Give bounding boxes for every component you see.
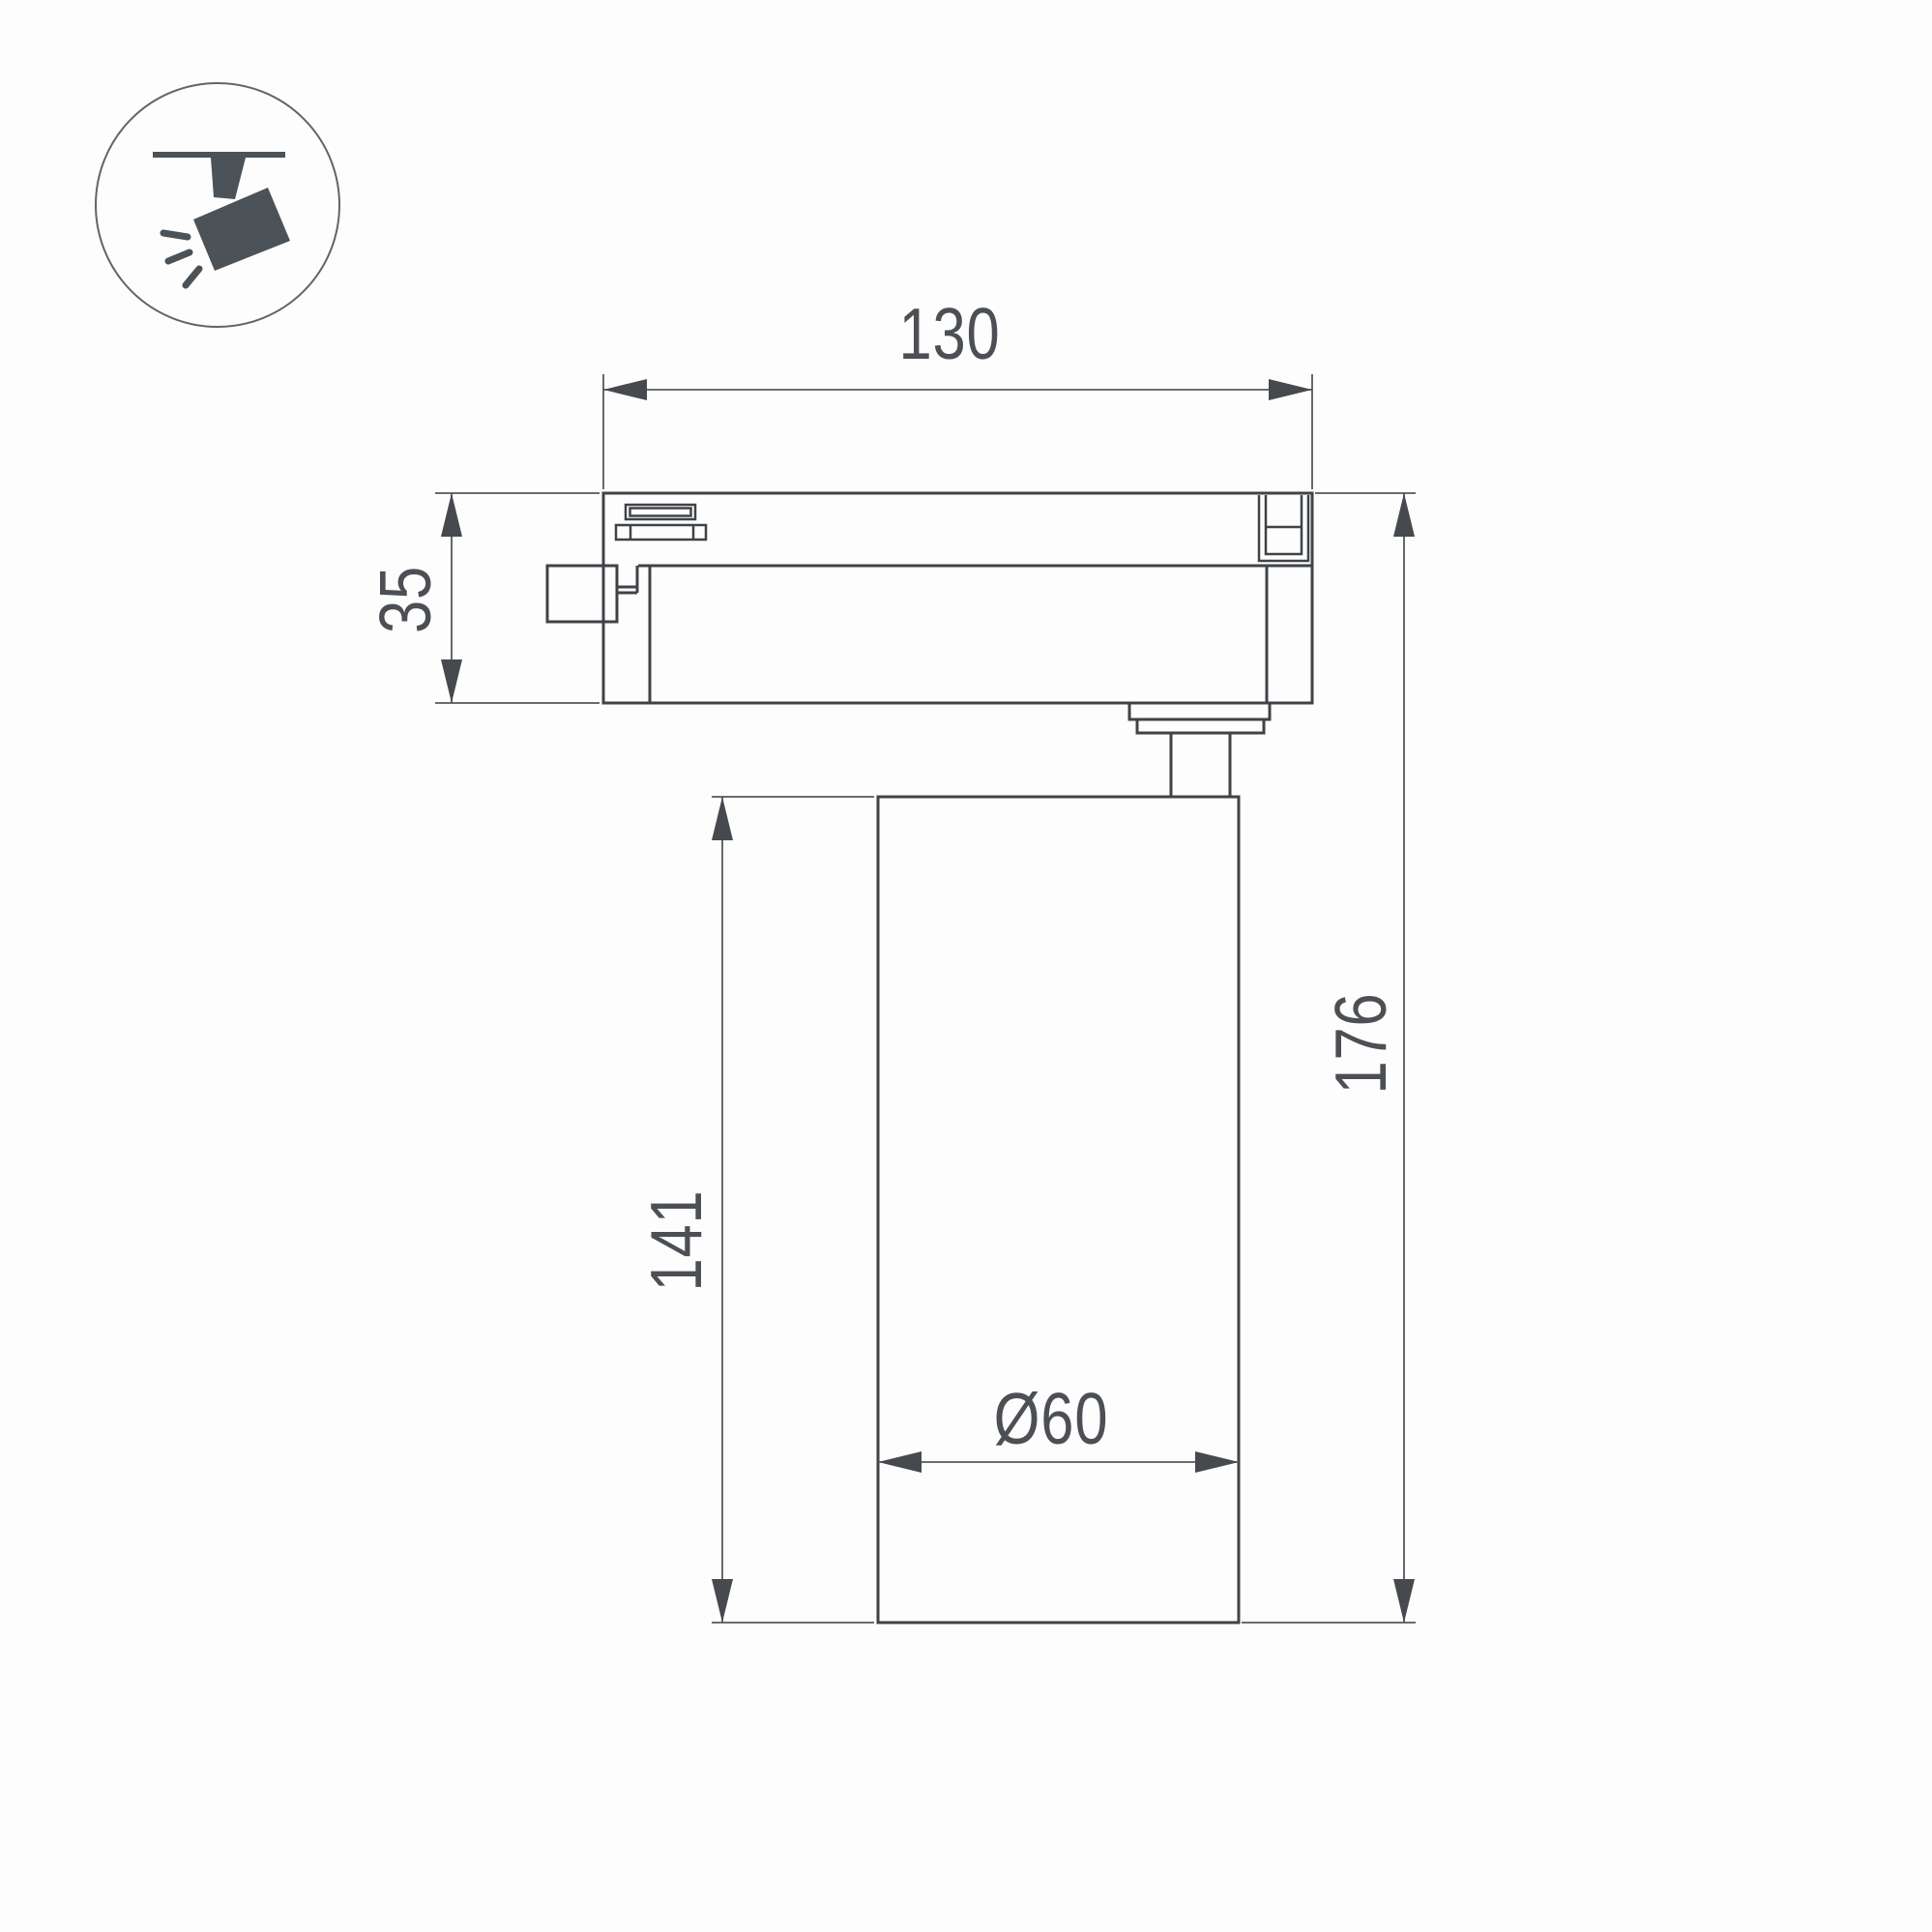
contact-bars-detail	[616, 505, 706, 540]
track-adapter-outline	[603, 493, 1312, 703]
locking-clip-detail	[1259, 495, 1308, 561]
dimension-adapter-height	[435, 493, 600, 703]
technical-drawing-page: 130 35 141 176 Ø60	[0, 0, 1932, 1932]
fixture-drawing	[0, 0, 1932, 1932]
dim-label-adapter-height: 35	[364, 566, 447, 633]
release-lever-outline	[547, 566, 637, 622]
dimension-body-height	[712, 797, 874, 1623]
dimension-adapter-width	[603, 374, 1312, 489]
swivel-flange-outline	[1129, 703, 1270, 797]
lamp-body-outline	[878, 797, 1239, 1623]
dim-label-body-diameter: Ø60	[994, 1377, 1109, 1460]
dim-label-total-height: 176	[1319, 992, 1402, 1094]
dim-label-body-height: 141	[634, 1189, 717, 1291]
dim-label-adapter-width: 130	[898, 292, 1000, 375]
